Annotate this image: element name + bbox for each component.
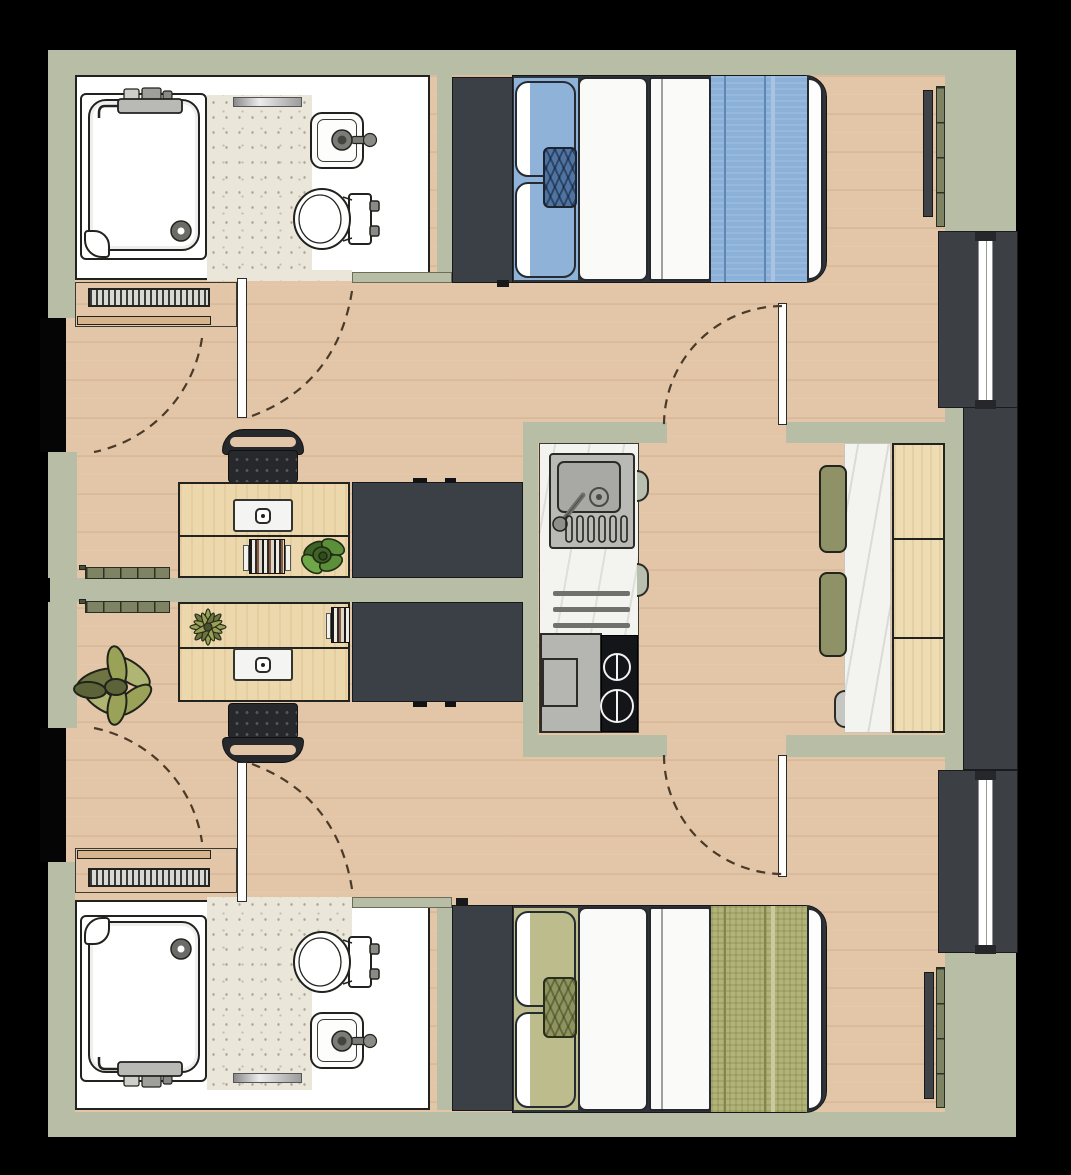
wardrobe-handle [445, 478, 456, 483]
wall-segment-central [50, 578, 538, 602]
side-stool [834, 690, 845, 728]
window-cap [975, 771, 996, 780]
wardrobe-handle [497, 280, 509, 287]
window-glazing [978, 779, 993, 946]
wall-segment [437, 897, 452, 1110]
book-stack [249, 539, 285, 574]
blanket-line [771, 76, 775, 282]
exterior-pier [963, 406, 1018, 770]
door-leaf-kitchen-bottom [778, 755, 787, 877]
unit-wall-bottom [786, 735, 945, 757]
window-glazing [978, 240, 993, 401]
radiator-fin-top [936, 86, 945, 227]
wardrobe-handle [445, 702, 456, 707]
shower-tray-bottom [88, 921, 200, 1073]
duvet [578, 907, 648, 1111]
laptop-logo-icon [255, 508, 271, 524]
floor-plan [0, 0, 1071, 1175]
shower-screen-bottom [233, 1073, 302, 1083]
wardrobe-bed-bottom [452, 905, 513, 1111]
heater-valve [79, 565, 86, 570]
wardrobe-handle [413, 478, 427, 483]
wardrobe-mid-bottom [352, 602, 523, 702]
radiator-fin-bottom [936, 967, 945, 1108]
wall-stub [352, 272, 452, 283]
kitchen-wall-north [523, 422, 667, 443]
wardrobe-mid-top [352, 482, 523, 578]
stool-cushion [819, 572, 847, 657]
wall-heater-strip [85, 601, 170, 613]
blanket-olive [711, 906, 807, 1112]
entry-shelf-top [77, 316, 211, 325]
kitchen-sink-bowl [557, 461, 621, 513]
door-leaf-bathroom-bottom [237, 762, 247, 902]
unit-wall-top [786, 422, 945, 443]
entry-shelf-bottom [77, 850, 211, 859]
hand-basin-bottom [310, 1012, 364, 1069]
blanket-blue [711, 76, 807, 282]
wall-stub [352, 897, 452, 908]
wall-segment [945, 406, 963, 770]
kitchen-wall-south [523, 735, 667, 757]
window-cap [975, 400, 996, 409]
entry-door-bottom [40, 728, 66, 862]
duvet [578, 77, 648, 281]
duvet-fold-line [661, 909, 663, 1109]
appliance-door [542, 658, 578, 707]
wall-segment [48, 75, 75, 318]
bench-seat [892, 443, 945, 733]
bookend [243, 545, 249, 571]
blanket-line [764, 906, 766, 1112]
blanket-line [771, 906, 775, 1112]
office-chair-seat [228, 450, 298, 483]
office-chair-seat [228, 703, 298, 739]
cooktop [601, 635, 638, 732]
blanket-line [724, 906, 726, 1112]
wardrobe-handle [456, 898, 468, 905]
laptop-logo-icon [255, 657, 271, 673]
wall-segment [48, 862, 75, 1112]
radiator-bar-top [923, 90, 933, 217]
blanket-line [724, 76, 726, 282]
window-bottom [938, 770, 1018, 953]
bookend [326, 613, 331, 639]
dining-table [844, 443, 891, 733]
wall-segment [48, 452, 77, 578]
wall-heater-strip [85, 567, 170, 579]
bench-divider [894, 538, 943, 540]
cushion-zigzag-blue [543, 147, 577, 208]
blanket-line [764, 76, 766, 282]
hand-basin-top [310, 112, 364, 169]
entry-door-top [40, 318, 66, 452]
bathroom-top-fixture-zone [312, 77, 428, 270]
duvet [649, 77, 711, 281]
office-chair-back [222, 737, 304, 763]
wall-segment [437, 75, 452, 283]
window-top [938, 231, 1018, 408]
bookend [285, 545, 291, 571]
bench-divider [894, 637, 943, 639]
wall-segment [945, 953, 1016, 1112]
wall-segment [48, 1112, 1016, 1137]
wardrobe-bed-top [452, 77, 513, 283]
door-leaf-kitchen-top [778, 303, 787, 425]
wall-segment [48, 50, 1016, 75]
mattress-end [807, 908, 823, 1110]
counter-vent-line [553, 607, 630, 612]
wardrobe-handle [413, 702, 427, 707]
duvet [649, 907, 711, 1111]
counter-vent-line [553, 623, 630, 628]
radiator-bar-bottom [924, 972, 934, 1099]
book-stack [331, 607, 350, 643]
duvet-fold-line [661, 79, 663, 279]
shower-screen-top [233, 97, 302, 107]
mattress-end [807, 78, 823, 280]
kitchen-wall-west [523, 422, 538, 757]
heater-valve [79, 599, 86, 604]
shower-tray-top [88, 99, 200, 251]
stool-cushion [819, 465, 847, 553]
door-leaf-bathroom-top [237, 278, 247, 418]
counter-vent-line [553, 591, 630, 596]
window-cap [975, 232, 996, 241]
wall-segment [48, 602, 77, 728]
cushion-olive [543, 977, 577, 1038]
wall-segment [945, 75, 1016, 231]
window-cap [975, 945, 996, 954]
